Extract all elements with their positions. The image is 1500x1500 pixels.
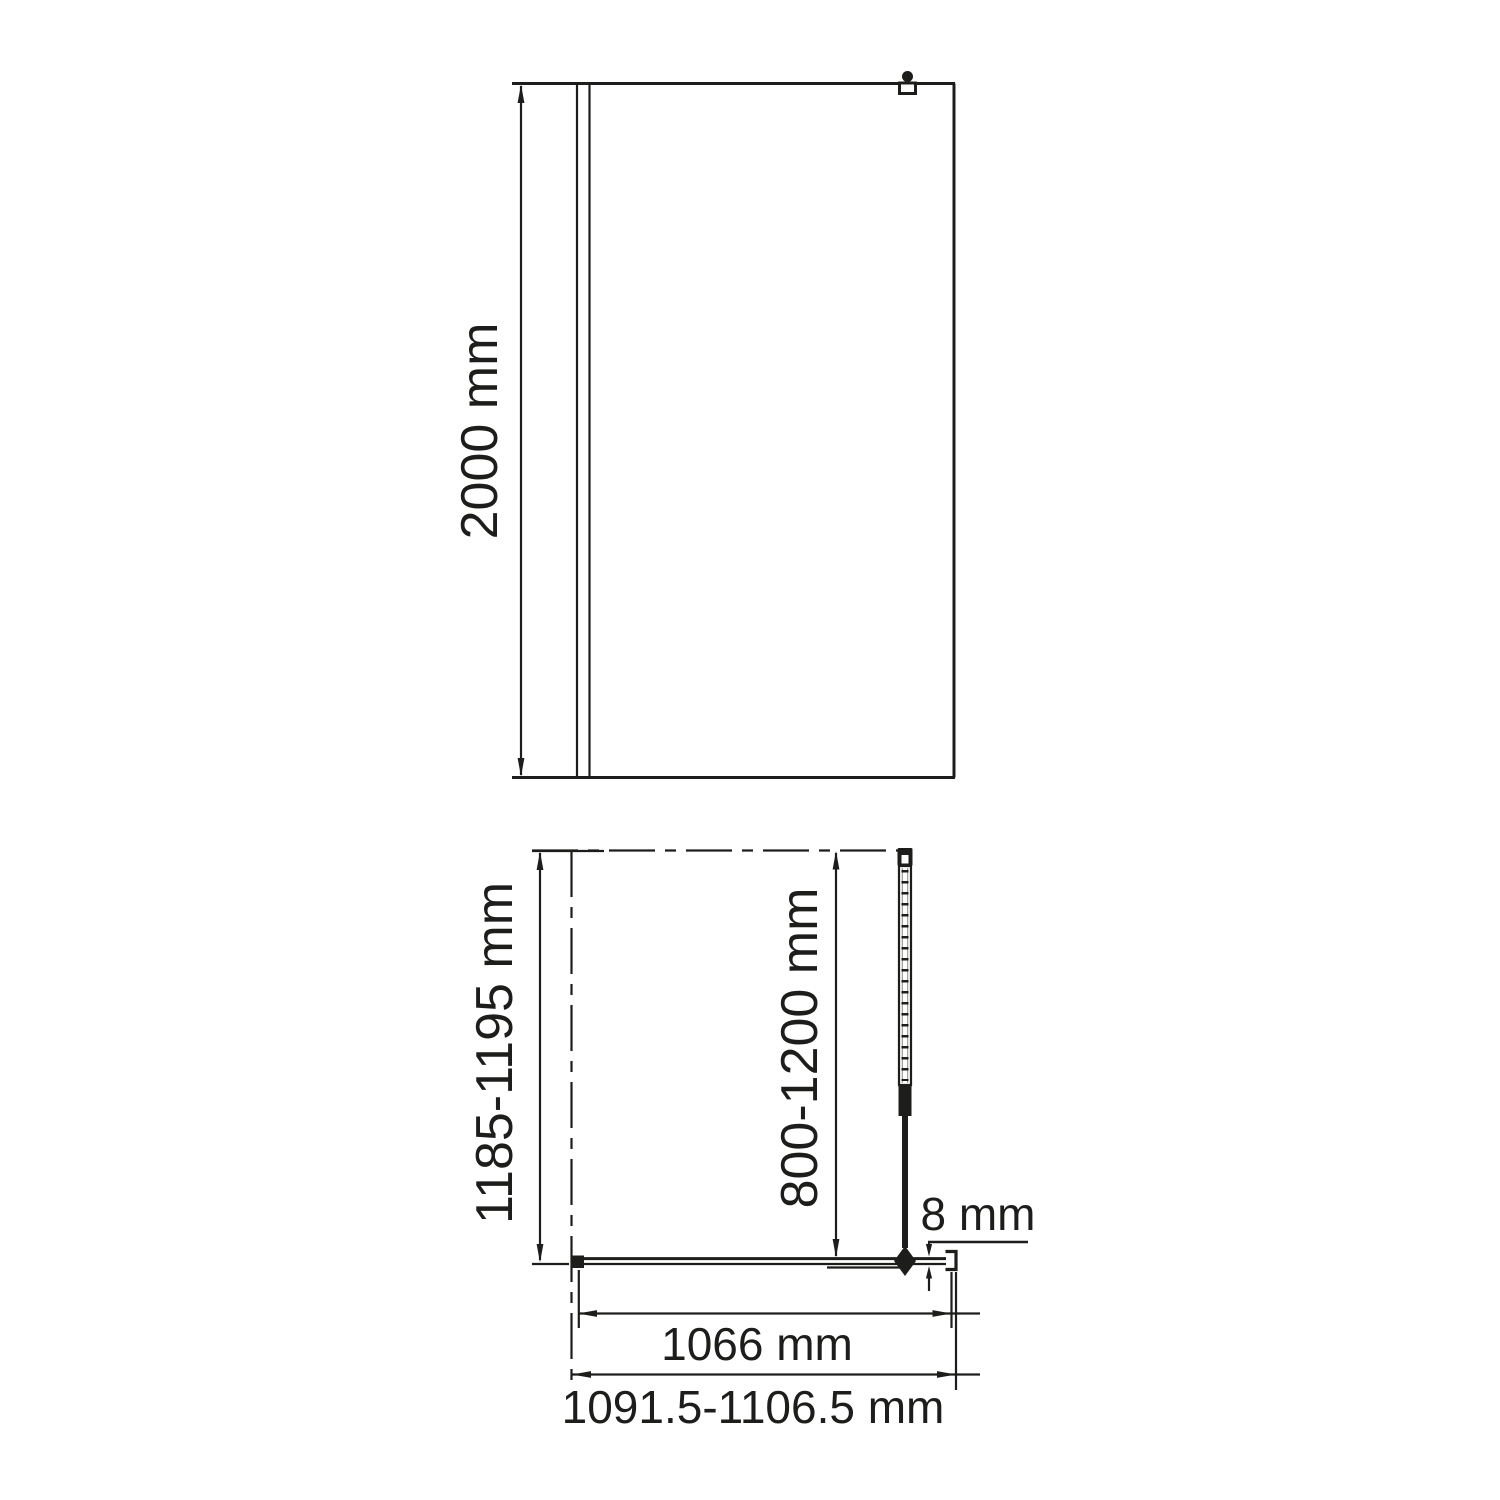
support-rod — [902, 1116, 908, 1248]
arrow-left-icon — [578, 1310, 597, 1317]
arrow-down-icon — [926, 1244, 932, 1257]
arrow-left-icon — [572, 1371, 591, 1378]
arrow-up-icon — [518, 85, 525, 104]
dimension-support-bar: 800-1200 mm — [771, 851, 900, 1268]
glass-width-label: 1066 mm — [661, 1318, 853, 1370]
support-clamp-sleeve — [899, 1085, 912, 1116]
height-dimension-label: 2000 mm — [451, 323, 509, 540]
shower-screen-drawing: 2000 mm — [0, 0, 1500, 1500]
technical-drawing-canvas: 2000 mm — [0, 0, 1500, 1500]
glass-clamp-icon — [894, 1246, 916, 1276]
support-tube — [899, 866, 911, 1085]
arrow-down-icon — [518, 758, 525, 777]
arrow-down-icon — [537, 1244, 544, 1263]
glass-end-cap — [946, 1252, 957, 1270]
dimension-glass-width: 1066 mm — [578, 1270, 980, 1370]
arrow-right-icon — [933, 1310, 952, 1317]
front-view: 2000 mm — [451, 71, 955, 778]
dimension-height: 2000 mm — [451, 85, 524, 777]
depth-dimension-label: 1185-1195 mm — [466, 882, 524, 1224]
arrow-right-icon — [937, 1371, 956, 1378]
support-bracket-front-icon — [900, 71, 916, 94]
support-bar — [894, 848, 916, 1276]
plan-view: 1185-1195 mm 800-1200 mm 8 mm 1066 m — [466, 848, 1036, 1433]
wall-bracket-notch — [902, 855, 909, 864]
overall-width-label: 1091.5-1106.5 mm — [562, 1381, 945, 1433]
arrow-up-icon — [537, 852, 544, 871]
dimension-depth: 1185-1195 mm — [466, 851, 604, 1264]
dimension-glass-thickness: 8 mm — [921, 1188, 1036, 1291]
glass-thickness-label: 8 mm — [921, 1188, 1036, 1240]
arrow-up-icon — [833, 851, 840, 870]
wall-profile-plan — [573, 1256, 585, 1269]
arrow-down-icon — [833, 1239, 840, 1258]
support-bar-dimension-label: 800-1200 mm — [771, 888, 829, 1209]
arrow-up-icon — [926, 1266, 932, 1279]
